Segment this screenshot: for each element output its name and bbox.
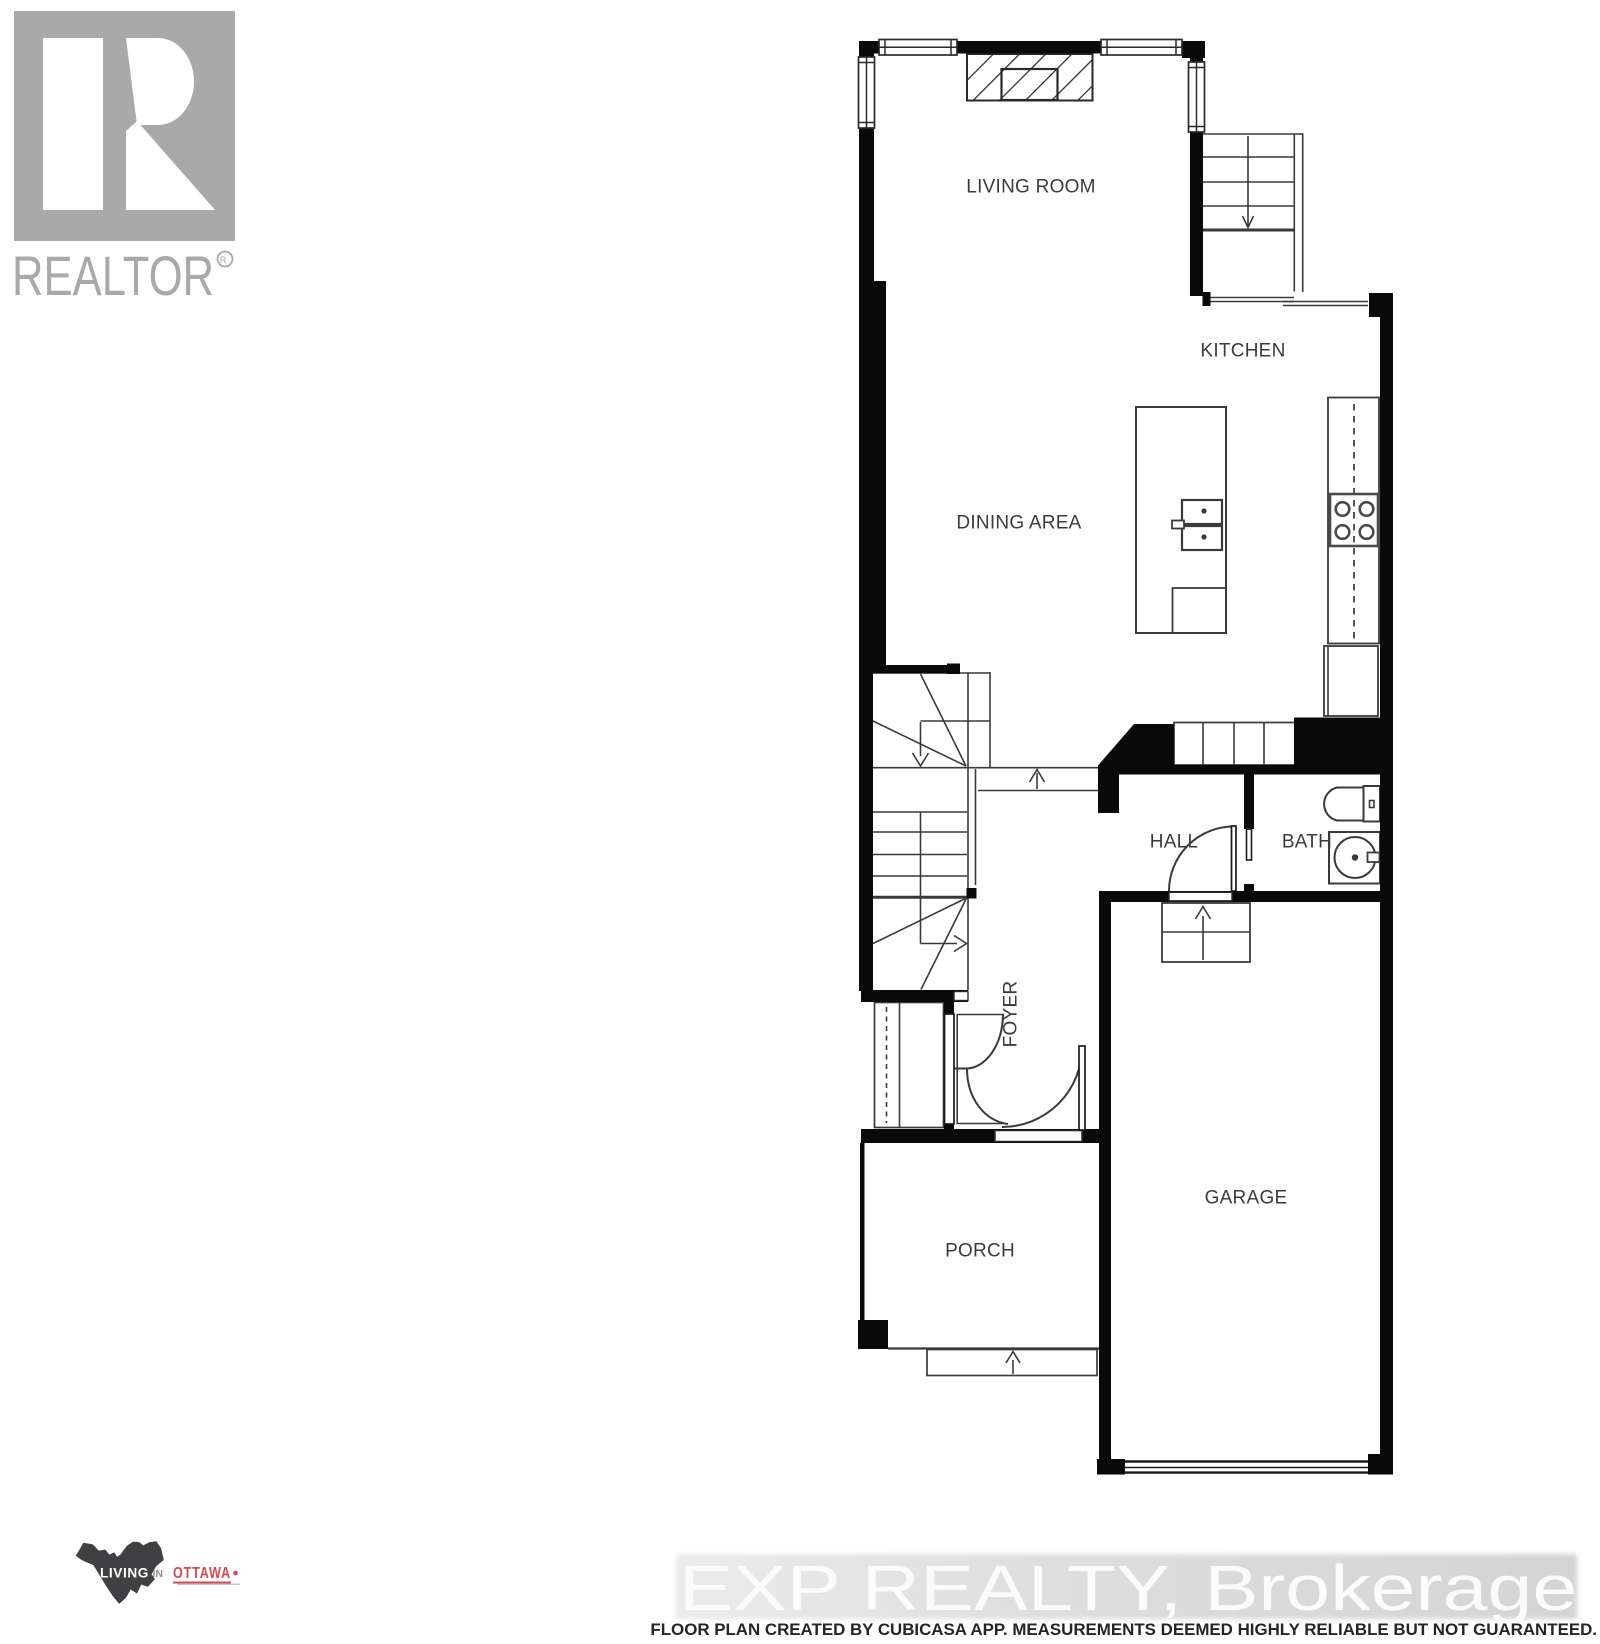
svg-text:LIVING: LIVING: [100, 1566, 149, 1582]
svg-text:KITCHEN: KITCHEN: [1200, 341, 1285, 362]
svg-text:R: R: [220, 255, 227, 265]
svg-text:LIVING ROOM: LIVING ROOM: [966, 177, 1095, 198]
svg-text:GARAGE: GARAGE: [1205, 1188, 1288, 1209]
svg-text:REALTOR: REALTOR: [12, 244, 214, 307]
svg-text:OTTAWA: OTTAWA: [173, 1565, 231, 1582]
svg-text:HALL: HALL: [1150, 832, 1199, 853]
svg-text:DINING AREA: DINING AREA: [956, 513, 1081, 534]
svg-text:IN: IN: [153, 1568, 164, 1580]
svg-text:FOYER: FOYER: [1001, 981, 1022, 1048]
svg-text:PORCH: PORCH: [945, 1241, 1015, 1262]
svg-text:BATH: BATH: [1282, 832, 1332, 853]
